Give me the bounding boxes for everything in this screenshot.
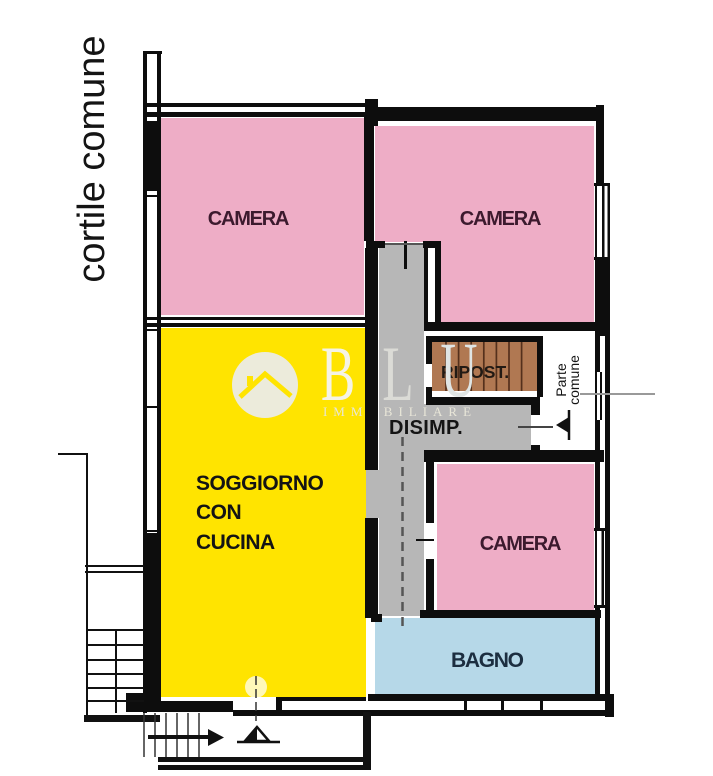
- svg-text:CUCINA: CUCINA: [196, 531, 275, 554]
- svg-text:BAGNO: BAGNO: [451, 649, 524, 672]
- svg-text:CAMERA: CAMERA: [480, 533, 561, 555]
- svg-text:DISIMP.: DISIMP.: [389, 417, 463, 439]
- svg-text:comune: comune: [566, 355, 582, 405]
- svg-text:CAMERA: CAMERA: [208, 208, 289, 230]
- svg-text:CAMERA: CAMERA: [460, 208, 541, 230]
- svg-text:cortile comune: cortile comune: [71, 35, 113, 282]
- svg-text:CON: CON: [196, 501, 241, 524]
- svg-text:SOGGIORNO: SOGGIORNO: [196, 472, 324, 495]
